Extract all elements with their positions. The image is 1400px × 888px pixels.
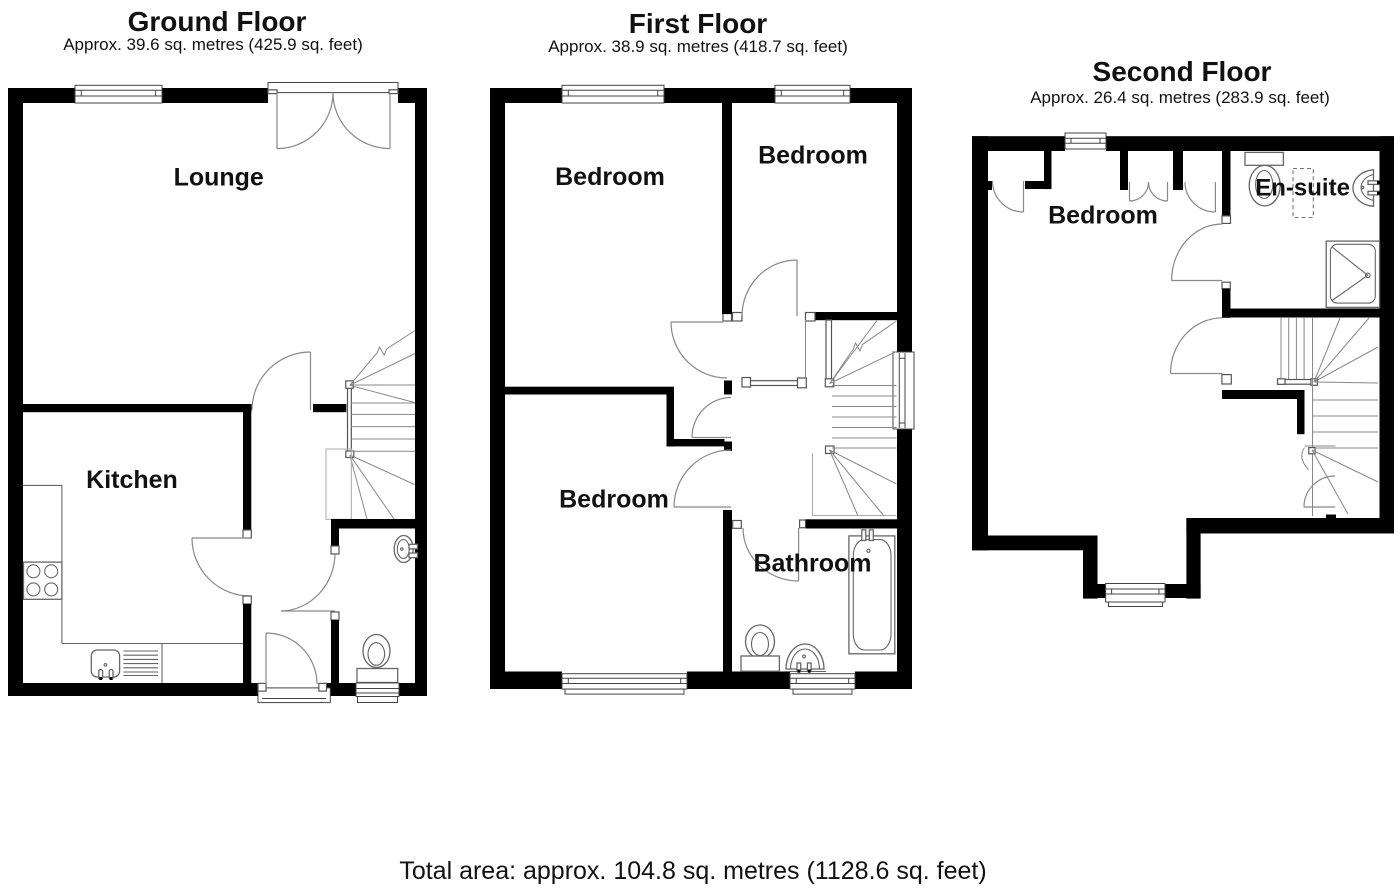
svg-text:Bedroom: Bedroom	[555, 163, 665, 191]
svg-text:Bathroom: Bathroom	[753, 550, 871, 578]
svg-text:Lounge: Lounge	[174, 164, 264, 192]
svg-text:Bedroom: Bedroom	[758, 142, 868, 170]
svg-text:Approx. 39.6 sq. metres (425.9: Approx. 39.6 sq. metres (425.9 sq. feet)	[63, 35, 363, 54]
svg-text:First Floor: First Floor	[629, 8, 768, 39]
svg-text:Total area: approx. 104.8 sq.: Total area: approx. 104.8 sq. metres (11…	[399, 857, 986, 885]
svg-text:Kitchen: Kitchen	[86, 466, 178, 494]
svg-text:Second Floor: Second Floor	[1093, 56, 1272, 87]
svg-text:Approx. 38.9 sq. metres (418.7: Approx. 38.9 sq. metres (418.7 sq. feet)	[548, 37, 848, 56]
svg-text:En-suite: En-suite	[1255, 175, 1350, 202]
svg-text:Bedroom: Bedroom	[559, 486, 669, 514]
svg-text:Bedroom: Bedroom	[1048, 202, 1158, 230]
svg-text:Ground Floor: Ground Floor	[128, 6, 307, 37]
svg-text:Approx. 26.4 sq. metres (283.9: Approx. 26.4 sq. metres (283.9 sq. feet)	[1030, 88, 1330, 107]
